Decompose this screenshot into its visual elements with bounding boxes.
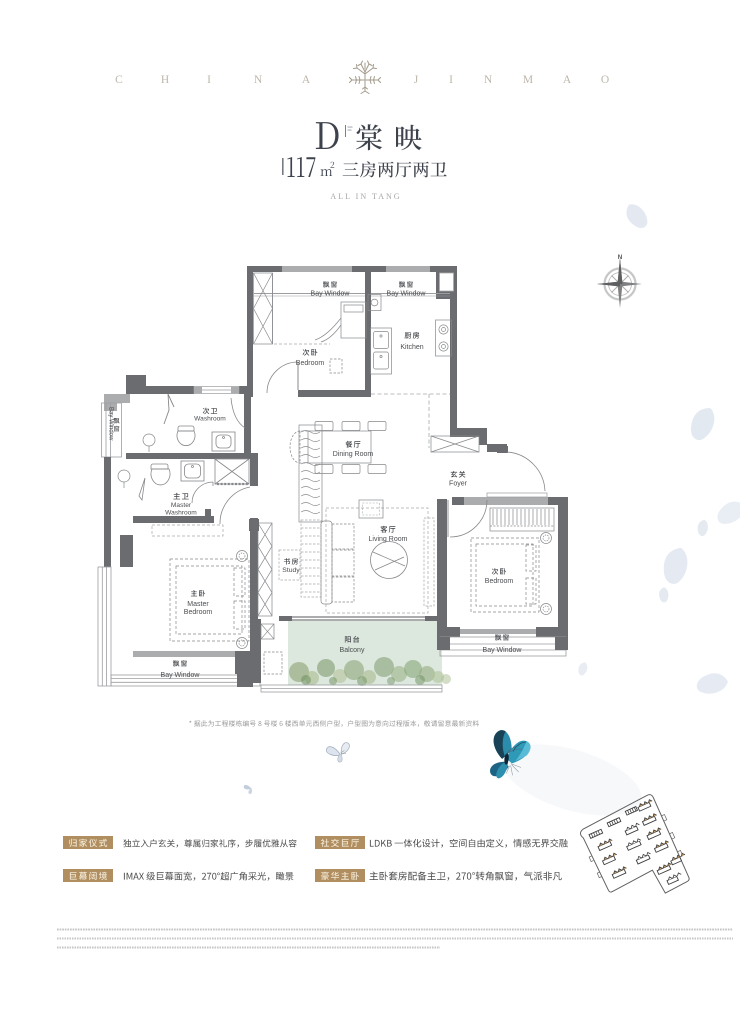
svg-text:Bedroom: Bedroom xyxy=(485,578,514,585)
svg-text:Balcony: Balcony xyxy=(340,647,365,654)
svg-text:C: C xyxy=(115,74,123,86)
svg-text:I: I xyxy=(449,74,453,86)
svg-text:Washroom: Washroom xyxy=(165,510,197,517)
svg-text:Bay Window: Bay Window xyxy=(387,291,427,298)
svg-text:Bay Window: Bay Window xyxy=(483,647,523,654)
svg-text:Master: Master xyxy=(171,502,192,509)
svg-text:J: J xyxy=(414,74,419,86)
svg-text:Bay Window: Bay Window xyxy=(161,672,201,679)
svg-text:O: O xyxy=(601,74,609,86)
svg-text:I: I xyxy=(207,74,211,86)
svg-text:Master: Master xyxy=(187,601,209,608)
svg-text:Foyer: Foyer xyxy=(449,481,468,488)
svg-text:A: A xyxy=(302,74,311,86)
svg-text:M: M xyxy=(523,74,533,86)
svg-text:N: N xyxy=(254,74,263,86)
svg-text:Study: Study xyxy=(282,567,300,574)
svg-text:N: N xyxy=(618,254,623,261)
svg-text:A: A xyxy=(563,74,572,86)
svg-text:Washroom: Washroom xyxy=(194,416,226,423)
svg-text:N: N xyxy=(484,74,493,86)
svg-text:Living Room: Living Room xyxy=(369,536,408,543)
svg-text:Dining Room: Dining Room xyxy=(333,451,374,458)
svg-text:Bay Window: Bay Window xyxy=(108,407,114,441)
svg-text:Bay Window: Bay Window xyxy=(311,291,351,298)
svg-text:Kitchen: Kitchen xyxy=(400,344,423,351)
svg-text:ALL IN TANG: ALL IN TANG xyxy=(330,192,401,201)
svg-text:H: H xyxy=(161,74,169,86)
svg-text:Bedroom: Bedroom xyxy=(184,609,213,616)
svg-text:Bedroom: Bedroom xyxy=(296,360,325,367)
